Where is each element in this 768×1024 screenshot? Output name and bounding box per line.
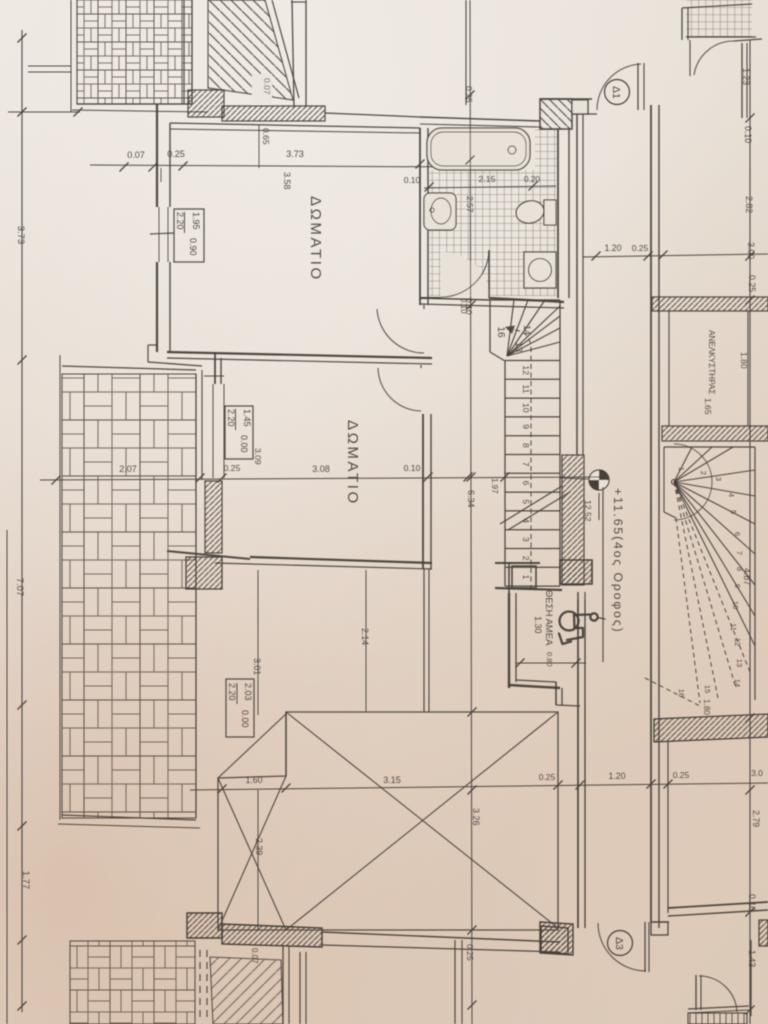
svg-text:7: 7 bbox=[521, 462, 531, 467]
svg-text:1.65: 1.65 bbox=[703, 398, 713, 415]
svg-text:1.60: 1.60 bbox=[245, 775, 262, 785]
svg-text:9: 9 bbox=[733, 584, 742, 588]
svg-text:ΔΩΜΑΤΙΟ: ΔΩΜΑΤΙΟ bbox=[307, 196, 324, 282]
svg-text:3.15: 3.15 bbox=[383, 775, 401, 785]
svg-text:3.73: 3.73 bbox=[286, 149, 304, 159]
svg-text:ΔΩΜΑΤΙΟ: ΔΩΜΑΤΙΟ bbox=[344, 420, 361, 506]
svg-text:1.30: 1.30 bbox=[533, 616, 543, 634]
svg-text:7: 7 bbox=[735, 551, 744, 555]
svg-text:3.00: 3.00 bbox=[746, 242, 756, 259]
svg-text:0.10: 0.10 bbox=[404, 175, 421, 185]
svg-text:2.20: 2.20 bbox=[175, 212, 185, 230]
svg-text:ΑΝΕΛΚΥΣΤΗΡΑΣ: ΑΝΕΛΚΥΣΤΗΡΑΣ bbox=[707, 330, 716, 395]
svg-text:2.79: 2.79 bbox=[751, 810, 761, 827]
svg-text:1.43: 1.43 bbox=[747, 950, 757, 967]
svg-text:ΘΕΣΗ ΑΜΕΑ: ΘΕΣΗ ΑΜΕΑ bbox=[543, 590, 554, 646]
svg-text:5: 5 bbox=[729, 510, 738, 514]
svg-text:10: 10 bbox=[521, 403, 531, 413]
svg-text:8: 8 bbox=[521, 443, 531, 448]
svg-text:0.10: 0.10 bbox=[459, 298, 468, 314]
svg-text:13: 13 bbox=[735, 659, 744, 667]
svg-text:0.07: 0.07 bbox=[127, 150, 145, 160]
svg-text:0.80: 0.80 bbox=[545, 652, 554, 667]
svg-text:Δ1: Δ1 bbox=[610, 86, 622, 99]
svg-text:9: 9 bbox=[521, 424, 531, 429]
svg-text:3.26: 3.26 bbox=[471, 808, 481, 826]
svg-text:0.10: 0.10 bbox=[743, 126, 753, 143]
svg-text:0.25: 0.25 bbox=[167, 149, 185, 159]
svg-text:0.25: 0.25 bbox=[224, 463, 241, 473]
svg-text:0.10: 0.10 bbox=[404, 463, 421, 473]
svg-text:6: 6 bbox=[733, 532, 742, 536]
svg-text:0.25: 0.25 bbox=[539, 772, 556, 782]
svg-text:1: 1 bbox=[677, 467, 686, 471]
svg-text:+11.65(4ος Οροφος): +11.65(4ος Οροφος) bbox=[611, 488, 625, 634]
svg-text:5: 5 bbox=[521, 499, 531, 504]
svg-text:2.14: 2.14 bbox=[360, 628, 370, 645]
svg-text:1.80: 1.80 bbox=[702, 699, 711, 715]
svg-text:7.07: 7.07 bbox=[14, 578, 25, 597]
svg-text:8: 8 bbox=[735, 567, 744, 571]
svg-text:0.90: 0.90 bbox=[188, 238, 198, 256]
svg-text:3.01: 3.01 bbox=[252, 658, 262, 675]
svg-text:1.80: 1.80 bbox=[739, 352, 749, 369]
svg-text:14: 14 bbox=[733, 679, 742, 687]
svg-text:0.00: 0.00 bbox=[239, 435, 249, 453]
svg-text:2.39: 2.39 bbox=[254, 838, 264, 855]
svg-text:1.97: 1.97 bbox=[490, 478, 499, 494]
svg-text:11: 11 bbox=[521, 385, 531, 394]
svg-text:0.07: 0.07 bbox=[262, 78, 272, 95]
svg-text:12: 12 bbox=[733, 638, 742, 646]
svg-text:6: 6 bbox=[521, 481, 531, 486]
svg-text:4: 4 bbox=[727, 493, 736, 497]
svg-text:2.03: 2.03 bbox=[243, 683, 253, 701]
svg-text:3.73: 3.73 bbox=[15, 226, 26, 245]
svg-text:3: 3 bbox=[521, 537, 531, 542]
svg-text:1.77: 1.77 bbox=[20, 871, 31, 890]
svg-text:10: 10 bbox=[731, 601, 740, 609]
svg-text:Δ3: Δ3 bbox=[613, 937, 625, 950]
svg-text:0.25: 0.25 bbox=[747, 275, 757, 292]
svg-text:2.20: 2.20 bbox=[226, 409, 236, 427]
svg-text:0.25: 0.25 bbox=[673, 770, 690, 780]
svg-text:2.20: 2.20 bbox=[227, 683, 237, 701]
svg-text:1.20: 1.20 bbox=[608, 771, 625, 781]
svg-text:0.25: 0.25 bbox=[465, 944, 475, 961]
svg-text:3.0: 3.0 bbox=[751, 768, 763, 778]
svg-text:3.58: 3.58 bbox=[282, 172, 292, 190]
svg-text:13: 13 bbox=[514, 342, 524, 352]
svg-text:2: 2 bbox=[521, 556, 531, 561]
svg-text:12: 12 bbox=[521, 365, 531, 375]
svg-text:1.45: 1.45 bbox=[242, 409, 252, 427]
svg-text:1: 1 bbox=[521, 575, 531, 580]
svg-text:2: 2 bbox=[699, 471, 708, 475]
svg-text:0.20: 0.20 bbox=[524, 175, 540, 184]
svg-text:16: 16 bbox=[677, 689, 686, 697]
svg-text:3.09: 3.09 bbox=[253, 448, 263, 465]
svg-text:0.25: 0.25 bbox=[464, 86, 474, 103]
svg-text:11: 11 bbox=[729, 623, 738, 631]
svg-text:1.20: 1.20 bbox=[604, 243, 621, 253]
svg-text:12.52: 12.52 bbox=[583, 500, 593, 522]
svg-text:3: 3 bbox=[714, 477, 723, 481]
svg-text:0.25: 0.25 bbox=[632, 243, 649, 253]
svg-text:2.15: 2.15 bbox=[479, 174, 496, 184]
svg-text:15: 15 bbox=[703, 685, 712, 693]
svg-text:1.23: 1.23 bbox=[741, 68, 751, 85]
svg-text:16: 16 bbox=[495, 326, 506, 338]
svg-text:1.95: 1.95 bbox=[191, 212, 201, 230]
svg-text:0.00: 0.00 bbox=[240, 710, 250, 728]
svg-text:3.08: 3.08 bbox=[312, 464, 330, 474]
svg-text:2.82: 2.82 bbox=[744, 196, 754, 213]
